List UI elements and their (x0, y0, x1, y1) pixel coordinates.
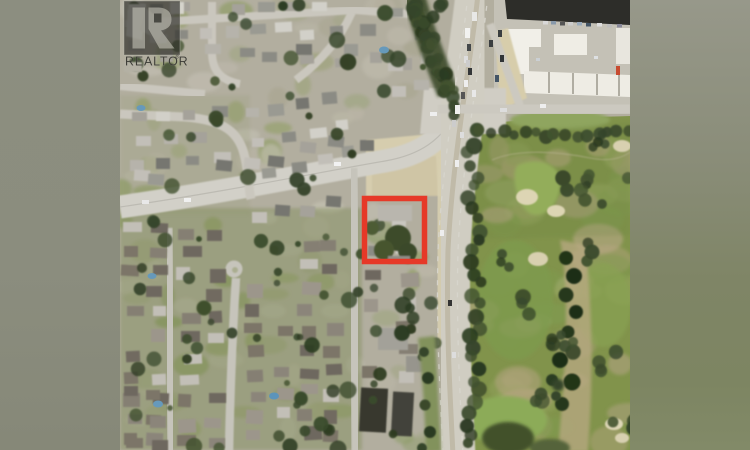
svg-text:®: ® (176, 54, 180, 61)
